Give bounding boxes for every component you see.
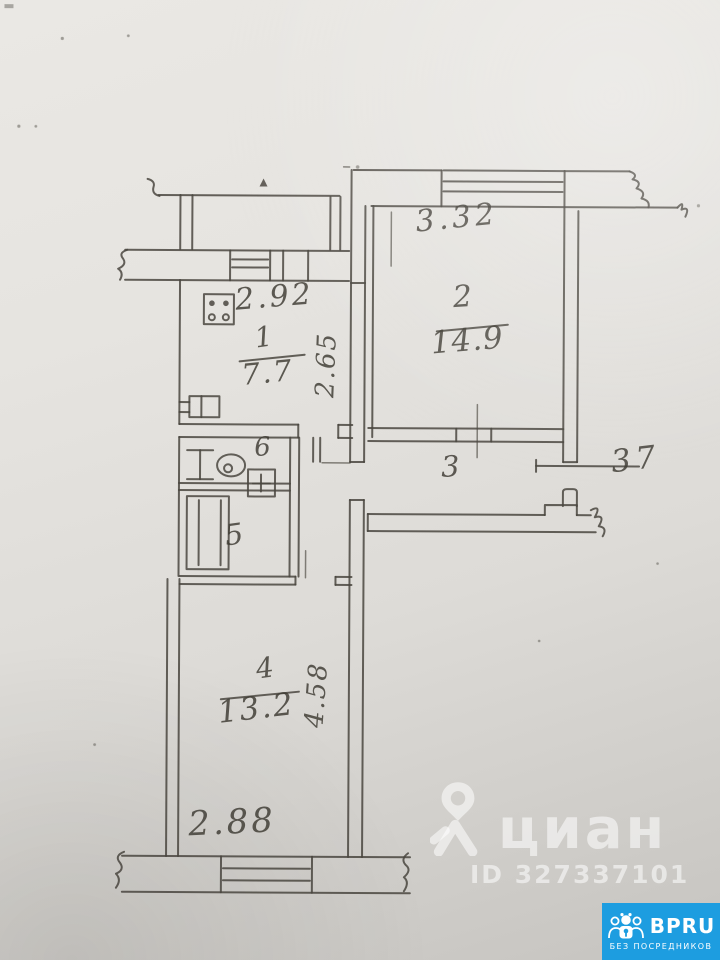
badge-brand: BPRU: [650, 914, 716, 938]
bpru-badge: BPRU БЕЗ ПОСРЕДНИКОВ: [602, 903, 720, 960]
balcony-walls: [147, 178, 340, 250]
room2-exterior-wall-window: [343, 167, 687, 217]
label-room6-number: 6: [253, 434, 271, 461]
bathtub-icon: [187, 496, 229, 569]
label-kitchen-depth: 2.65: [312, 318, 342, 411]
central-structural-wall: [348, 170, 366, 857]
label-room1-area: 7.7: [240, 356, 295, 390]
label-room2-area: 14.9: [430, 323, 505, 360]
bottom-exterior-wall-window: [116, 852, 410, 894]
label-hallway-area: 37: [609, 442, 662, 479]
label-room4-width: 2.88: [187, 803, 276, 841]
scanned-floor-plan-photo: 2.92 1 7.7 2.65 3.32 2 14.9 3 37 6 5 4 1…: [0, 0, 720, 960]
kitchen-sink-icon: [179, 396, 219, 417]
floor-plan: 2.92 1 7.7 2.65 3.32 2 14.9 3 37 6 5 4 1…: [0, 0, 720, 960]
label-room4-number: 4: [254, 653, 275, 683]
label-room3-number: 3: [440, 452, 460, 482]
label-kitchen-width: 2.92: [234, 279, 315, 315]
label-room5-number: 5: [223, 519, 245, 550]
toilet-icon: [187, 450, 245, 479]
kitchen-exterior-wall-window: [118, 250, 349, 281]
floor-plan-drawing: [0, 0, 720, 960]
hallway-walls: [368, 504, 605, 536]
label-room2-number: 2: [452, 282, 473, 313]
badge-tagline: БЕЗ ПОСРЕДНИКОВ: [610, 942, 713, 951]
label-room1-number: 1: [253, 322, 274, 352]
label-room4-depth: 4.58: [300, 648, 333, 742]
stove-icon: [204, 294, 234, 324]
people-group-icon: [607, 912, 645, 939]
label-room4-area: 13.2: [216, 689, 296, 729]
label-room2-width: 3.32: [414, 199, 499, 237]
